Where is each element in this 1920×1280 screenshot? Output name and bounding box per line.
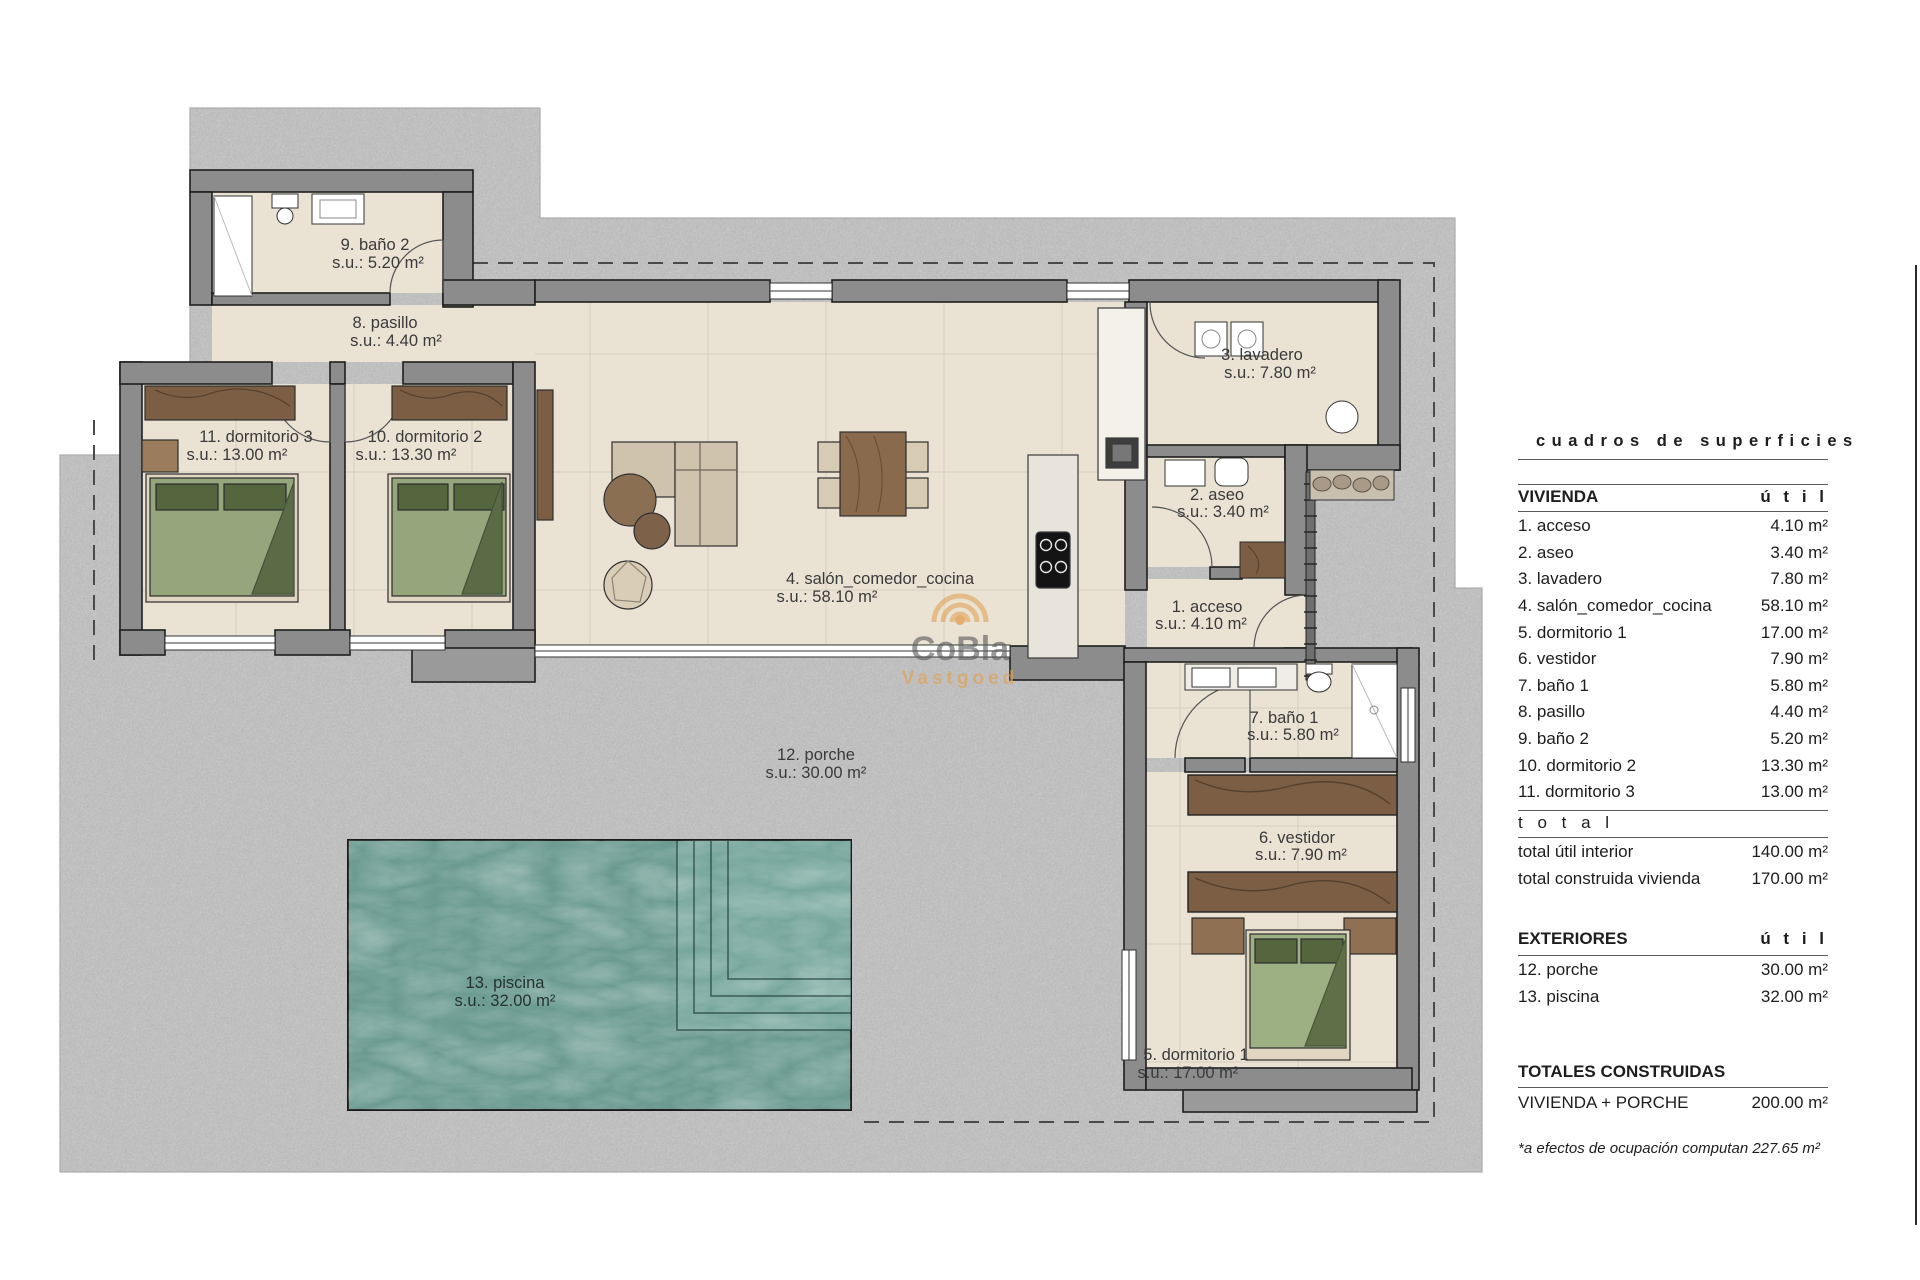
rule: [1518, 459, 1828, 460]
label-dorm3-name: 11. dormitorio 3: [199, 428, 312, 446]
row-value: 5.80 m²: [1770, 676, 1828, 696]
label-dorm1-su: s.u.: 17.00 m²: [1138, 1064, 1239, 1082]
watermark-brand: CoBla: [911, 630, 1010, 668]
label-piscina-name: 13. piscina: [466, 974, 546, 992]
totales-header: TOTALES CONSTRUIDAS: [1518, 1062, 1828, 1082]
rule: [1518, 810, 1828, 811]
row-label: VIVIENDA + PORCHE: [1518, 1093, 1689, 1113]
row-label: total construida vivienda: [1518, 869, 1700, 889]
vivienda-title: VIVIENDA: [1518, 487, 1598, 507]
vivienda-header: VIVIENDA ú t i l: [1518, 487, 1828, 507]
row-value: 7.80 m²: [1770, 569, 1828, 589]
exteriores-rows: 12. porche30.00 m² 13. piscina32.00 m²: [1518, 957, 1828, 1010]
label-salon-su: s.u.: 58.10 m²: [777, 588, 878, 606]
total-rows: total útil interior140.00 m² total const…: [1518, 839, 1828, 892]
rule: [1518, 1087, 1828, 1088]
label-lavadero-su: s.u.: 7.80 m²: [1224, 364, 1316, 382]
table-row: 6. vestidor7.90 m²: [1518, 646, 1828, 673]
row-value: 200.00 m²: [1751, 1093, 1828, 1113]
table-row: 11. dormitorio 313.00 m²: [1518, 779, 1828, 806]
table-row: VIVIENDA + PORCHE200.00 m²: [1518, 1090, 1828, 1117]
table-row: 7. baño 15.80 m²: [1518, 673, 1828, 700]
table-row: 12. porche30.00 m²: [1518, 957, 1828, 984]
row-label: 13. piscina: [1518, 987, 1599, 1007]
row-value: 3.40 m²: [1770, 543, 1828, 563]
row-value: 4.40 m²: [1770, 702, 1828, 722]
row-value: 4.10 m²: [1770, 516, 1828, 536]
label-porche-su: s.u.: 30.00 m²: [766, 764, 867, 782]
label-acceso-name: 1. acceso: [1172, 598, 1243, 616]
label-acceso-su: s.u.: 4.10 m²: [1155, 615, 1247, 633]
table-row: 4. salón_comedor_cocina58.10 m²: [1518, 593, 1828, 620]
row-label: 8. pasillo: [1518, 702, 1585, 722]
label-piscina-su: s.u.: 32.00 m²: [455, 992, 556, 1010]
table-row: total útil interior140.00 m²: [1518, 839, 1828, 866]
row-label: 11. dormitorio 3: [1518, 782, 1635, 802]
table-row: 5. dormitorio 117.00 m²: [1518, 619, 1828, 646]
row-label: 4. salón_comedor_cocina: [1518, 596, 1712, 616]
row-value: 7.90 m²: [1770, 649, 1828, 669]
row-label: 10. dormitorio 2: [1518, 756, 1636, 776]
row-value: 5.20 m²: [1770, 729, 1828, 749]
util-label: ú t i l: [1760, 487, 1828, 507]
table-title: cuadros de superficies: [1536, 432, 1859, 451]
rule: [1518, 837, 1828, 838]
table-row: 3. lavadero7.80 m²: [1518, 566, 1828, 593]
rule: [1518, 511, 1828, 512]
label-bano2-su: s.u.: 5.20 m²: [332, 254, 424, 272]
watermark-sub: Vastgoed: [902, 668, 1018, 689]
exteriores-header: EXTERIORES ú t i l: [1518, 929, 1828, 949]
row-label: 1. acceso: [1518, 516, 1591, 536]
totales-rows: VIVIENDA + PORCHE200.00 m²: [1518, 1090, 1828, 1117]
pool: [348, 840, 851, 1110]
rule: [1518, 955, 1828, 956]
label-aseo-su: s.u.: 3.40 m²: [1177, 503, 1269, 521]
vivienda-rows: 1. acceso4.10 m² 2. aseo3.40 m² 3. lavad…: [1518, 513, 1828, 806]
row-value: 58.10 m²: [1761, 596, 1828, 616]
row-value: 17.00 m²: [1761, 623, 1828, 643]
total-label: t o t a l: [1518, 813, 1614, 833]
table-row: 1. acceso4.10 m²: [1518, 513, 1828, 540]
exteriores-title: EXTERIORES: [1518, 929, 1628, 949]
util-label: ú t i l: [1760, 929, 1828, 949]
label-dorm3-su: s.u.: 13.00 m²: [187, 446, 288, 464]
row-label: 6. vestidor: [1518, 649, 1596, 669]
table-row: 13. piscina32.00 m²: [1518, 984, 1828, 1011]
label-salon-name: 4. salón_comedor_cocina: [786, 570, 975, 588]
floorplan-sheet: CoBla Vastgoed 9. baño 2 s.u.: 5.20 m² 8…: [0, 0, 1920, 1280]
label-aseo-name: 2. aseo: [1190, 486, 1244, 504]
bedroom2-furniture: [388, 386, 510, 602]
table-row: total construida vivienda170.00 m²: [1518, 866, 1828, 893]
footnote: *a efectos de ocupación computan 227.65 …: [1518, 1140, 1878, 1157]
row-label: total útil interior: [1518, 842, 1633, 862]
label-dorm2-name: 10. dormitorio 2: [368, 428, 483, 446]
table-row: 9. baño 25.20 m²: [1518, 726, 1828, 753]
row-label: 2. aseo: [1518, 543, 1574, 563]
label-pasillo-su: s.u.: 4.40 m²: [350, 332, 442, 350]
label-bano1-name: 7. baño 1: [1250, 709, 1319, 727]
totales-title: TOTALES CONSTRUIDAS: [1518, 1062, 1725, 1082]
label-dorm2-su: s.u.: 13.30 m²: [356, 446, 457, 464]
row-value: 140.00 m²: [1751, 842, 1828, 862]
label-pasillo-name: 8. pasillo: [352, 314, 417, 332]
row-value: 13.30 m²: [1761, 756, 1828, 776]
row-label: 5. dormitorio 1: [1518, 623, 1627, 643]
label-vestidor-name: 6. vestidor: [1259, 829, 1336, 847]
bedroom3-furniture: [142, 386, 298, 602]
row-value: 13.00 m²: [1761, 782, 1828, 802]
row-label: 9. baño 2: [1518, 729, 1589, 749]
label-bano2-name: 9. baño 2: [341, 236, 410, 254]
row-value: 30.00 m²: [1761, 960, 1828, 980]
label-bano1-su: s.u.: 5.80 m²: [1247, 726, 1339, 744]
table-row: 10. dormitorio 213.30 m²: [1518, 752, 1828, 779]
rule: [1518, 484, 1828, 485]
row-value: 170.00 m²: [1751, 869, 1828, 889]
row-label: 7. baño 1: [1518, 676, 1589, 696]
row-value: 32.00 m²: [1761, 987, 1828, 1007]
surface-table: cuadros de superficies VIVIENDA ú t i l …: [1518, 0, 1828, 1280]
label-dorm1-name: 5. dormitorio 1: [1143, 1046, 1248, 1064]
row-label: 3. lavadero: [1518, 569, 1602, 589]
cobla-logo-dot: [955, 615, 965, 625]
table-row: 2. aseo3.40 m²: [1518, 540, 1828, 567]
table-row: 8. pasillo4.40 m²: [1518, 699, 1828, 726]
label-lavadero-name: 3. lavadero: [1221, 346, 1303, 364]
row-label: 12. porche: [1518, 960, 1598, 980]
label-vestidor-su: s.u.: 7.90 m²: [1255, 846, 1347, 864]
label-porche-name: 12. porche: [777, 746, 855, 764]
